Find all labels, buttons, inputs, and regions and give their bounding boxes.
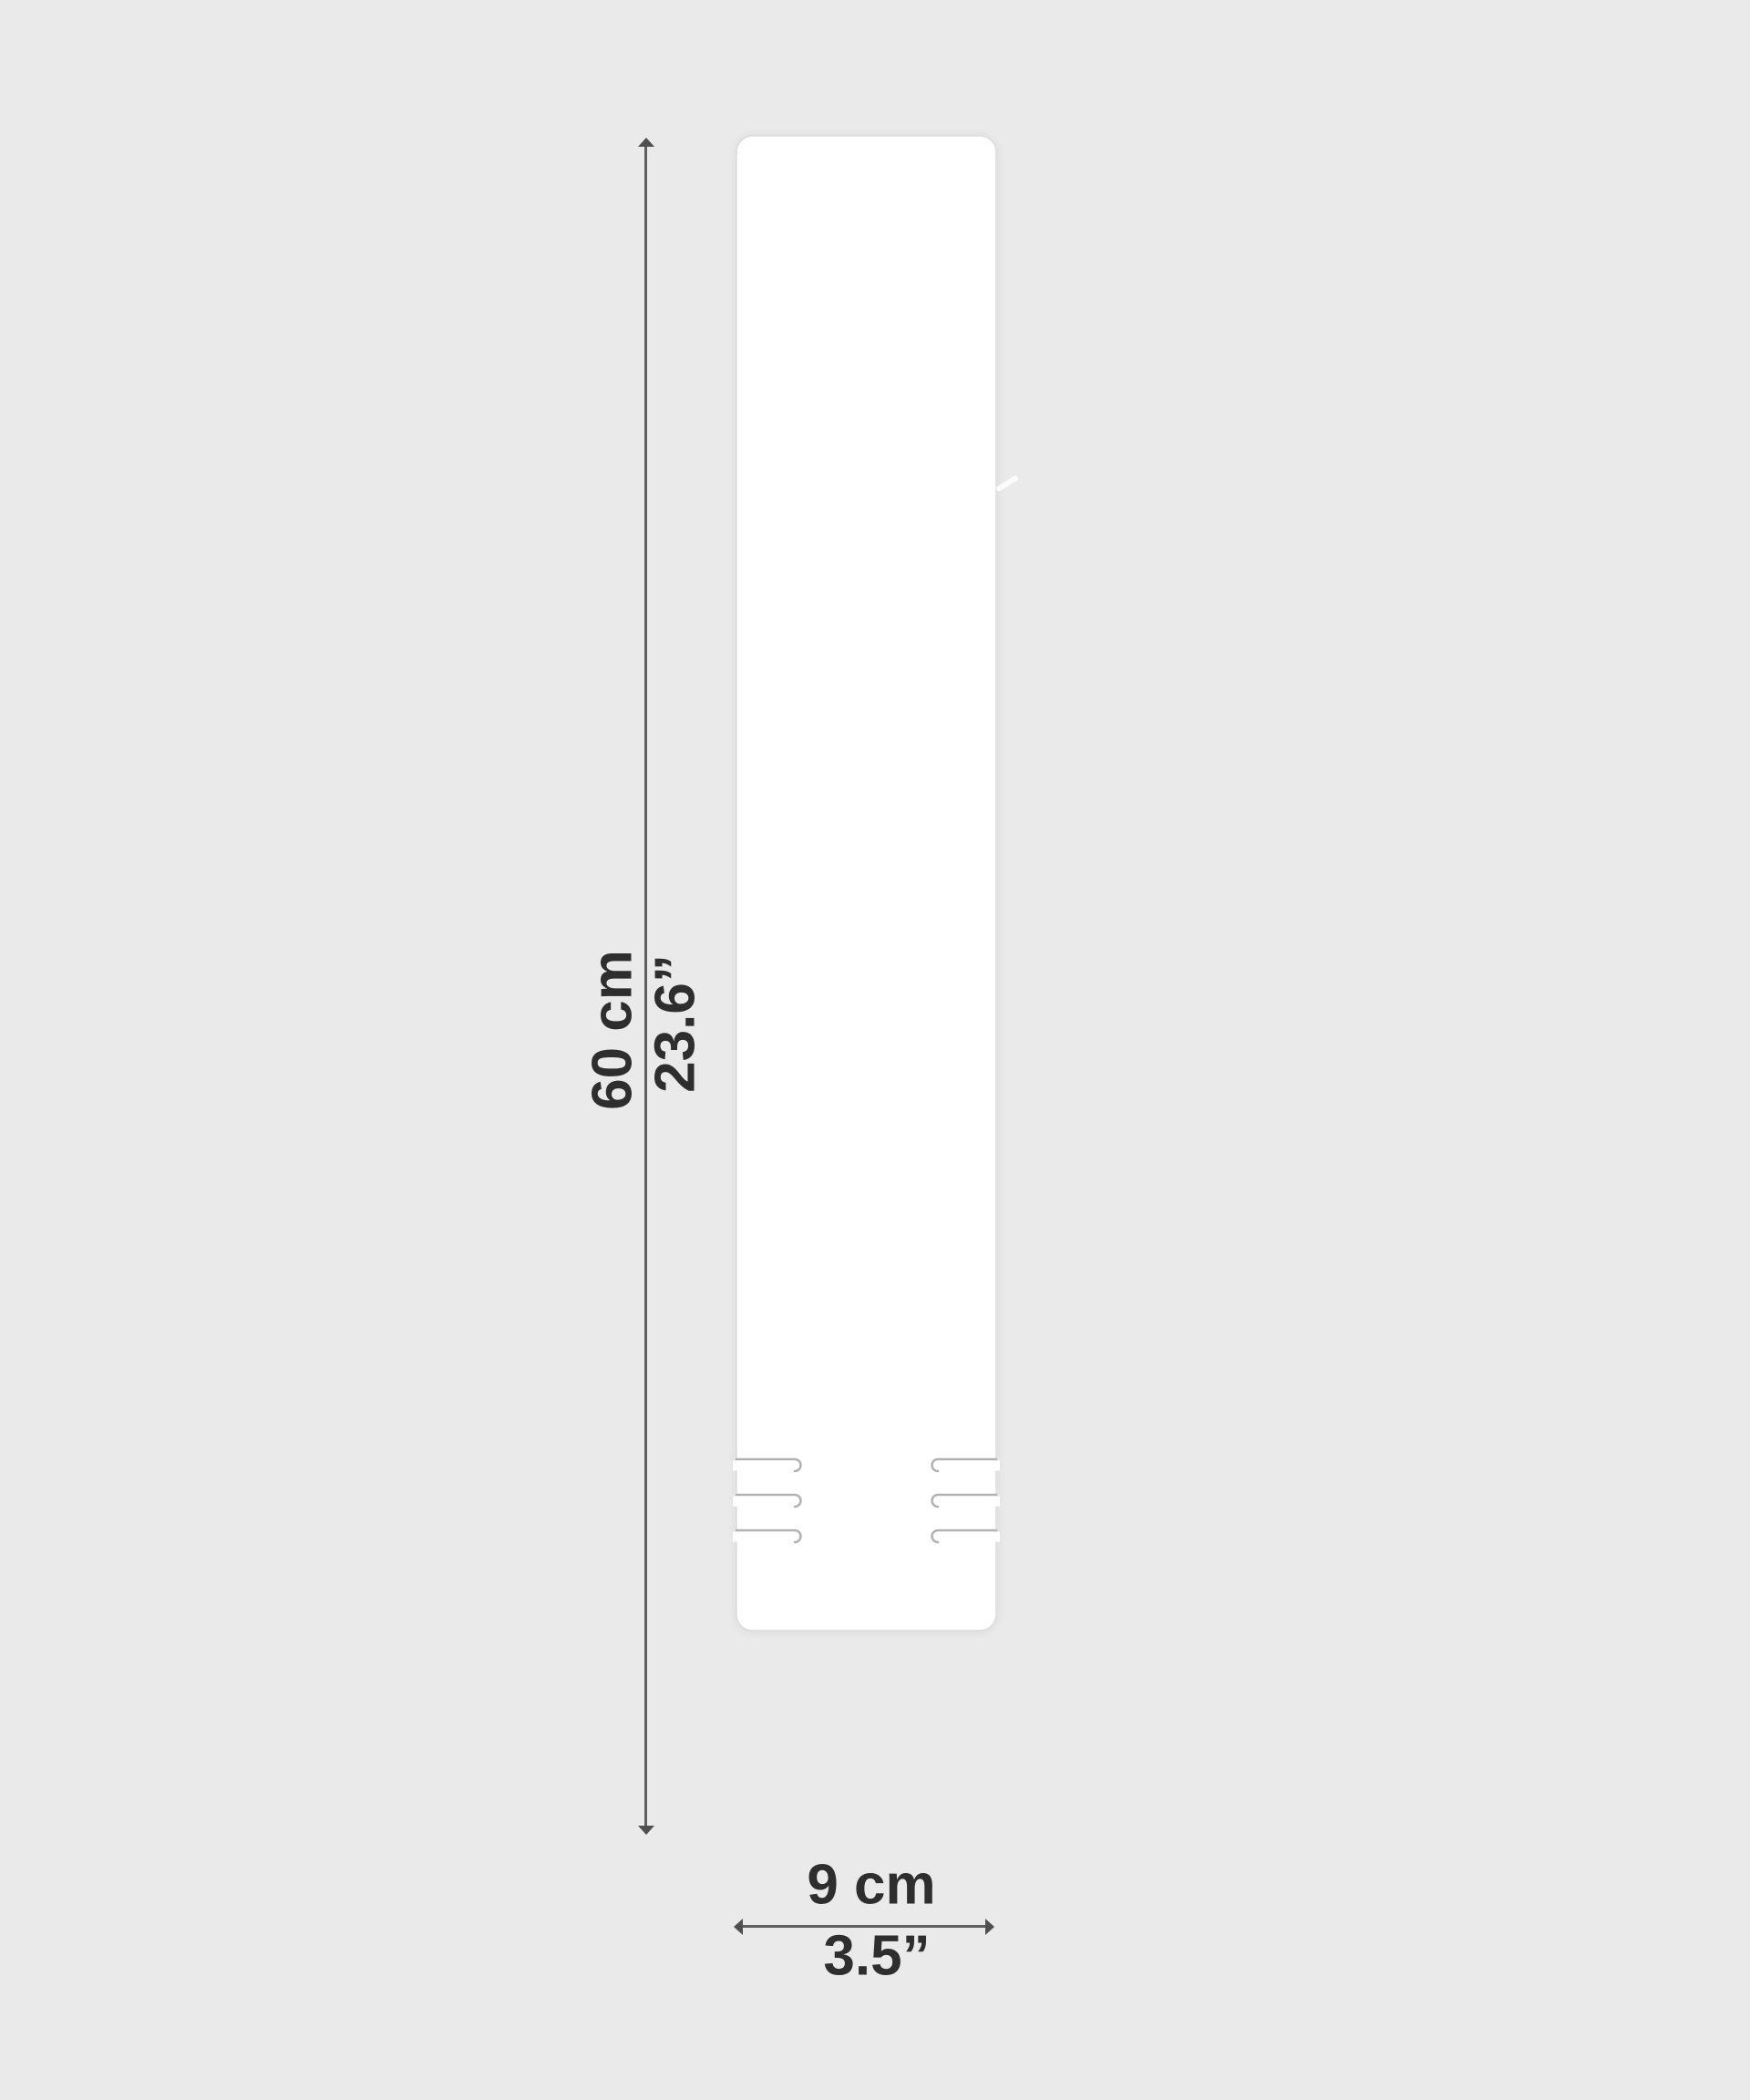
width-imperial-label: 3.5” [823, 1924, 930, 1989]
product-drawing [0, 0, 1750, 2100]
panel-body [736, 136, 996, 1631]
arrow-down-icon [638, 1826, 654, 1835]
arrow-up-icon [638, 138, 654, 147]
arrow-right-icon [985, 1919, 994, 1935]
width-metric-label: 9 cm [807, 1853, 935, 1918]
arrow-left-icon [734, 1919, 743, 1935]
dimension-diagram: 60 cm 23.6” 9 cm 3.5” [0, 0, 1750, 2100]
height-metric-label: 60 cm [581, 950, 645, 1110]
edge-highlight-mark [999, 479, 1015, 489]
height-imperial-label: 23.6” [643, 954, 708, 1093]
